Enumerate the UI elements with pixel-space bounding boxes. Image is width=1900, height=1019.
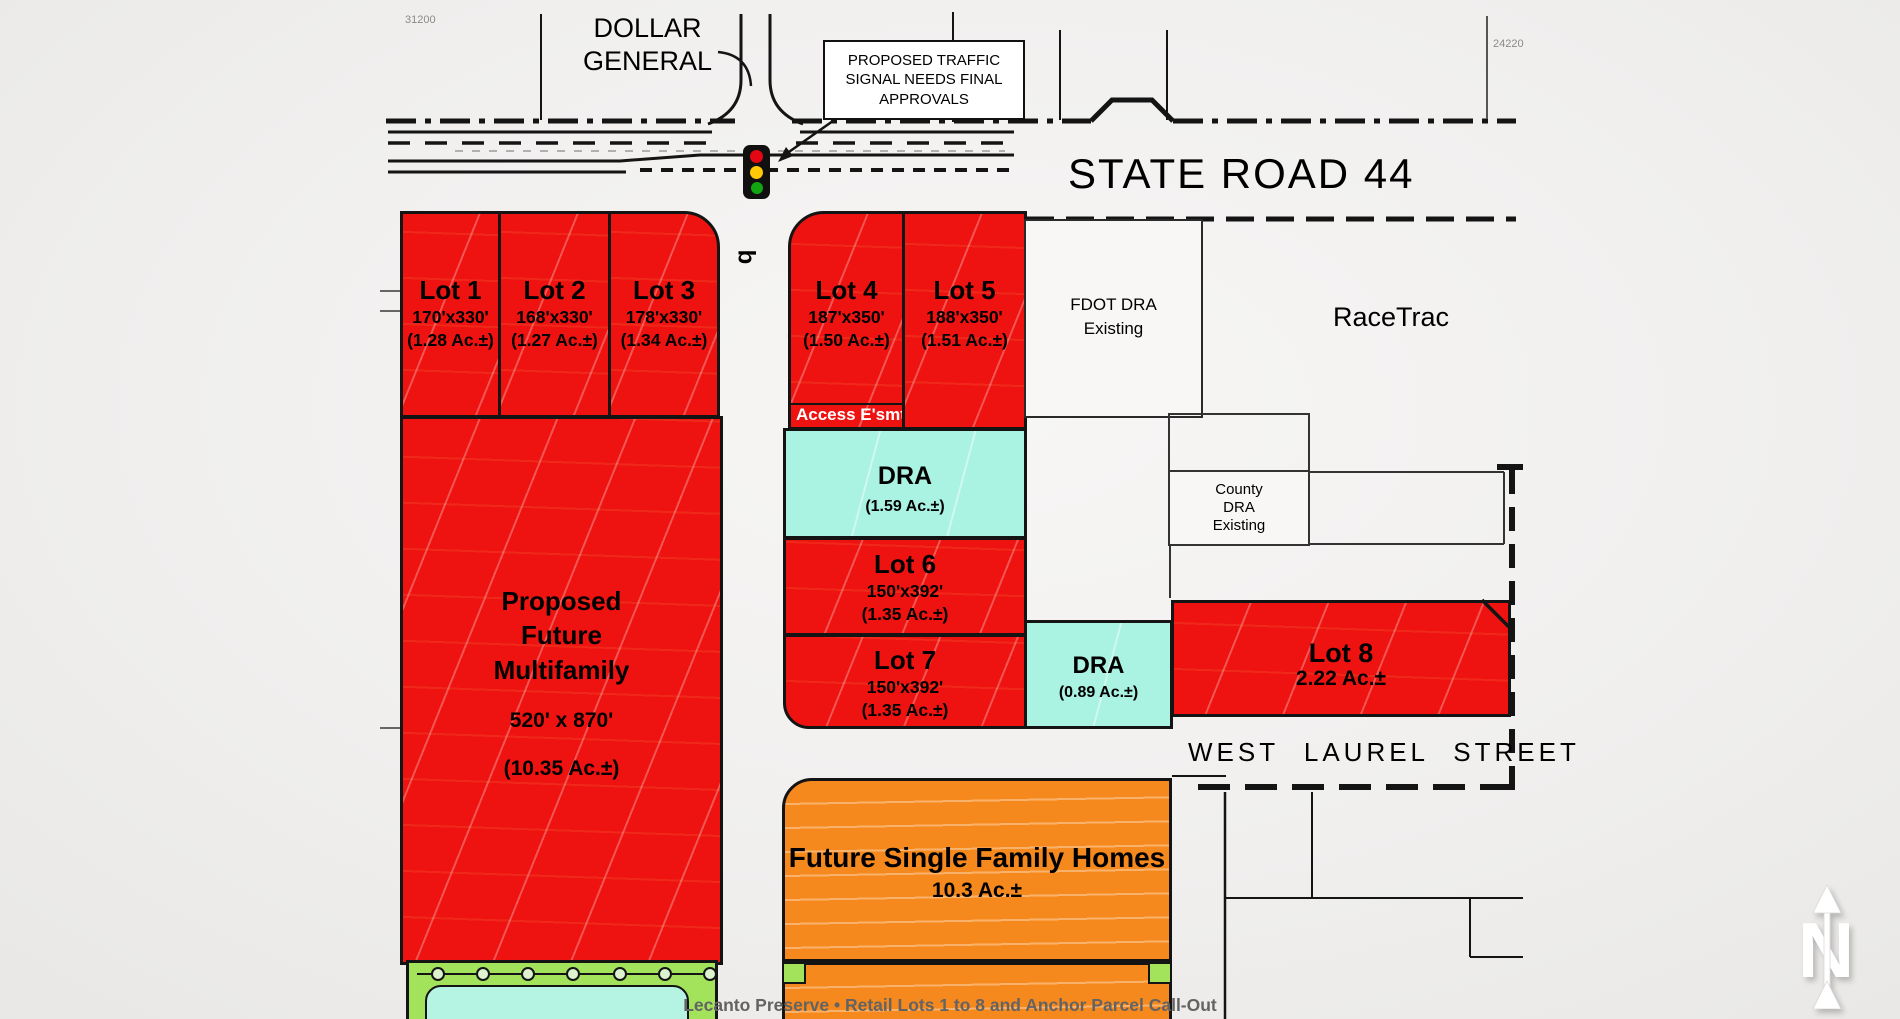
road-station-marker: b xyxy=(731,250,759,265)
lot-area: (1.34 Ac.±) xyxy=(621,329,708,352)
tree-icon xyxy=(613,967,627,981)
lot-name: Lot 3 xyxy=(633,276,695,306)
racetrac-label: RaceTrac xyxy=(1333,302,1449,333)
lot-dims: 150'x392' xyxy=(867,676,943,699)
west-laurel-street-label: WEST LAUREL STREET xyxy=(1188,737,1580,768)
parcel-dra-north: DRA (1.59 Ac.±) xyxy=(783,428,1027,539)
lot-area: 2.22 Ac.± xyxy=(1296,667,1386,691)
br-small-rect xyxy=(1470,898,1523,957)
parcel-lot-7: Lot 7 150'x392' (1.35 Ac.±) xyxy=(783,634,1027,729)
parcel-fdot-dra: FDOT DRA Existing xyxy=(1024,219,1203,418)
parcel-lot-1: Lot 1 170'x330' (1.28 Ac.±) xyxy=(400,211,501,418)
dollar-general-line2: GENERAL xyxy=(565,45,730,78)
dollar-general-line1: DOLLAR xyxy=(565,12,730,45)
multifamily-title: Proposed Future Multifamily xyxy=(494,584,630,687)
tree-icon xyxy=(476,967,490,981)
north-arrow-head xyxy=(1813,885,1841,913)
lot-dims: 178'x330' xyxy=(626,306,702,329)
single-family-title: Future Single Family Homes xyxy=(789,843,1166,874)
callout-line3: APPROVALS xyxy=(825,90,1023,110)
lot-name: Lot 2 xyxy=(523,276,585,306)
page-caption: Lecanto Preserve • Retail Lots 1 to 8 an… xyxy=(0,995,1900,1016)
fdot-dra-label-line1: FDOT DRA xyxy=(1070,293,1157,317)
multifamily-line2: Future xyxy=(494,618,630,652)
parcel-number-left: 31200 xyxy=(405,14,436,26)
buffer-green-east xyxy=(1148,962,1172,984)
parcel-lot-8: Lot 8 2.22 Ac.± xyxy=(1171,600,1511,717)
signal-amber-light xyxy=(750,166,763,179)
tree-icon xyxy=(431,967,445,981)
county-dra-line3: Existing xyxy=(1213,517,1266,535)
access-easement-label: Access E'smt xyxy=(796,405,906,425)
driveway-right-edge xyxy=(770,14,803,124)
callout-line2: SIGNAL NEEDS FINAL xyxy=(825,70,1023,90)
lot-name: Lot 8 xyxy=(1309,639,1374,667)
lot-area: (1.28 Ac.±) xyxy=(407,329,494,352)
lot-name: Lot 7 xyxy=(874,646,936,676)
lot-area: (1.51 Ac.±) xyxy=(921,329,1008,352)
parcel-lot-5: Lot 5 188'x350' (1.51 Ac.±) xyxy=(902,211,1027,430)
west-boundary-ticks xyxy=(380,291,402,728)
lot-name: Lot 1 xyxy=(419,276,481,306)
parcel-lot-3: Lot 3 178'x330' (1.34 Ac.±) xyxy=(608,211,720,418)
site-plan-canvas: Lot 1 170'x330' (1.28 Ac.±) Lot 2 168'x3… xyxy=(0,0,1900,1019)
multifamily-dims: 520' x 870' xyxy=(510,709,613,733)
row-bump xyxy=(1091,100,1173,121)
tree-icon xyxy=(566,967,580,981)
lot-name: Lot 4 xyxy=(815,276,877,306)
parcel-dra-south: DRA (0.89 Ac.±) xyxy=(1024,620,1173,729)
lot-area: (1.35 Ac.±) xyxy=(862,603,949,626)
lane-line-taper xyxy=(388,155,1014,161)
dra-area: (1.59 Ac.±) xyxy=(865,498,944,516)
signal-green-light xyxy=(751,182,763,194)
lot-dims: 150'x392' xyxy=(867,580,943,603)
parcel-single-family: Future Single Family Homes 10.3 Ac.± xyxy=(782,778,1172,962)
dra-area: (0.89 Ac.±) xyxy=(1059,684,1138,702)
lot-name: Lot 5 xyxy=(933,276,995,306)
lot-dims: 168'x330' xyxy=(516,306,592,329)
county-dra-line1: County xyxy=(1215,481,1263,499)
state-road-44-label: STATE ROAD 44 xyxy=(1068,150,1415,198)
parcel-county-dra: County DRA Existing xyxy=(1168,470,1310,546)
tree-icon xyxy=(521,967,535,981)
multifamily-line3: Multifamily xyxy=(494,653,630,687)
tree-icon xyxy=(703,967,717,981)
parcel-multifamily: Proposed Future Multifamily 520' x 870' … xyxy=(400,416,723,965)
lot-area: (1.35 Ac.±) xyxy=(862,699,949,722)
lot-dims: 188'x350' xyxy=(926,306,1002,329)
callout-line1: PROPOSED TRAFFIC xyxy=(825,51,1023,71)
signal-red-light xyxy=(750,150,763,163)
dra-label: DRA xyxy=(1073,653,1125,679)
multifamily-area: (10.35 Ac.±) xyxy=(504,757,620,781)
tree-icon xyxy=(658,967,672,981)
dra-label: DRA xyxy=(878,463,932,491)
buffer-green-west xyxy=(782,962,806,984)
lot-dims: 187'x350' xyxy=(808,306,884,329)
fdot-dra-label-line2: Existing xyxy=(1084,317,1144,341)
multifamily-line1: Proposed xyxy=(494,584,630,618)
parcel-lot-4: Lot 4 187'x350' (1.50 Ac.±) Access E'smt xyxy=(788,211,905,430)
dollar-general-label: DOLLAR GENERAL xyxy=(565,12,730,78)
parcel-lot-6: Lot 6 150'x392' (1.35 Ac.±) xyxy=(783,537,1027,636)
lot-area: (1.50 Ac.±) xyxy=(803,329,890,352)
traffic-signal-icon xyxy=(743,145,770,199)
lot-dims: 170'x330' xyxy=(412,306,488,329)
north-arrow-shaft xyxy=(1824,901,1830,987)
single-family-area: 10.3 Ac.± xyxy=(932,879,1022,903)
parcel-lot-2: Lot 2 168'x330' (1.27 Ac.±) xyxy=(498,211,611,418)
traffic-signal-callout: PROPOSED TRAFFIC SIGNAL NEEDS FINAL APPR… xyxy=(823,40,1025,120)
parcel-number-right: 24220 xyxy=(1493,38,1524,50)
parcel-county-upper xyxy=(1168,413,1310,472)
lot-name: Lot 6 xyxy=(874,550,936,580)
lot-area: (1.27 Ac.±) xyxy=(511,329,598,352)
county-dra-line2: DRA xyxy=(1223,499,1255,517)
